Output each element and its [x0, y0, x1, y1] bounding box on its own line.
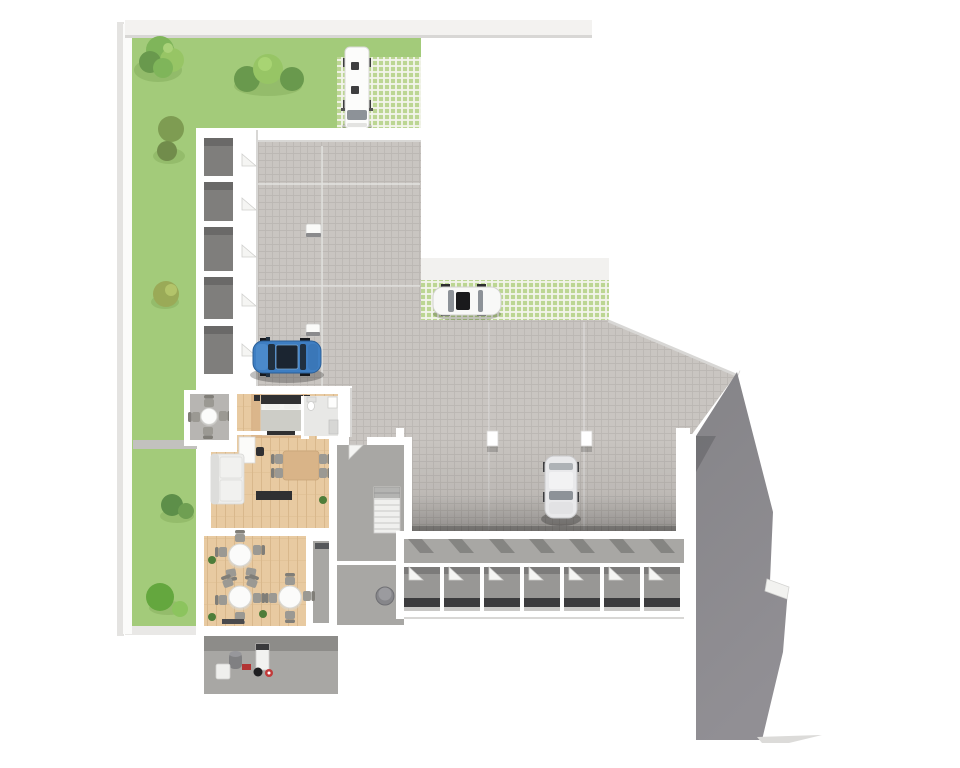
- cafe-chair: [303, 591, 315, 601]
- terrace-chair: [188, 412, 200, 422]
- floor-plan-render: [0, 0, 960, 768]
- round-table: [228, 586, 253, 611]
- blue-car: [250, 337, 324, 383]
- potted-plant: [208, 556, 216, 564]
- storage-compartments: [396, 531, 692, 619]
- garage-boxes: [196, 128, 258, 396]
- cafe-chair: [265, 593, 277, 603]
- sidewalk: [421, 258, 612, 282]
- cafe-chair: [253, 593, 265, 603]
- pump: [254, 668, 263, 677]
- nightstand: [254, 395, 260, 401]
- cafe-chair: [253, 545, 265, 555]
- north-boundary-wall-edge: [125, 35, 592, 38]
- parking-wall-east: [676, 428, 690, 536]
- dining-table: [283, 451, 319, 480]
- toilet: [308, 402, 315, 411]
- terrace-chair: [204, 395, 214, 407]
- cafe-chair: [215, 547, 227, 557]
- grass-paver-pad-north: [337, 47, 421, 137]
- delivery-van: [341, 47, 373, 133]
- ramp-bottom-shadow: [757, 735, 822, 743]
- ramp-wall: [688, 434, 696, 742]
- terrace: [184, 390, 232, 446]
- north-wing-wall: [256, 128, 421, 141]
- storage-unit: [484, 567, 524, 611]
- shower: [329, 420, 338, 434]
- silver-car: [541, 456, 581, 526]
- storage-unit: [444, 567, 484, 611]
- potted-plant: [319, 496, 327, 504]
- round-table: [228, 544, 253, 569]
- north-boundary-wall: [125, 20, 592, 36]
- staircase: [374, 487, 400, 533]
- apartment: [184, 386, 352, 536]
- storage-unit: [404, 567, 444, 611]
- white-car: [433, 284, 501, 321]
- bathroom: [301, 396, 340, 439]
- lawn-west-strip: [130, 130, 196, 628]
- sofa: [211, 454, 244, 504]
- round-table: [278, 586, 303, 611]
- covered-parking-area: [396, 428, 690, 536]
- cafe-chair: [215, 595, 227, 605]
- driveway-ramp: [688, 372, 822, 743]
- hall-door-opening: [349, 437, 367, 445]
- courtyard-light-box-2: [306, 324, 320, 336]
- storage-unit: [564, 567, 604, 611]
- desk-chair: [256, 447, 264, 456]
- east-parking-strip: [421, 258, 614, 321]
- cafe-chair: [285, 611, 295, 623]
- floor-plan-stage: [0, 0, 960, 768]
- cafe-chair: [285, 573, 295, 585]
- west-boundary-shadow: [117, 22, 124, 636]
- storage-unit: [604, 567, 644, 611]
- potted-plant: [208, 613, 216, 621]
- storage-unit: [644, 567, 684, 611]
- strip-end-wall: [609, 258, 614, 320]
- doormat: [222, 619, 244, 624]
- terrace-chair: [203, 427, 213, 439]
- tv-sideboard: [256, 491, 292, 500]
- bedroom-wall: [237, 431, 267, 435]
- ramp-surface: [696, 372, 788, 740]
- cafe-chair: [235, 530, 245, 542]
- equipment-box: [216, 664, 230, 679]
- bed: [261, 395, 303, 435]
- washbasin: [328, 397, 337, 408]
- storage-unit: [524, 567, 564, 611]
- terrace-table: [200, 408, 218, 426]
- technical-room: [196, 628, 346, 702]
- west-boundary-wall: [123, 24, 132, 634]
- potted-plant: [259, 610, 267, 618]
- parking-pillar-1: [487, 431, 498, 446]
- tank-room-wall: [337, 561, 404, 565]
- valve: [242, 664, 251, 670]
- dining-chair: [271, 454, 283, 464]
- lawn-south-wall: [125, 626, 197, 635]
- parking-pillar-2: [581, 431, 592, 446]
- courtyard-light-box-1: [306, 224, 321, 237]
- dining-chair: [271, 468, 283, 478]
